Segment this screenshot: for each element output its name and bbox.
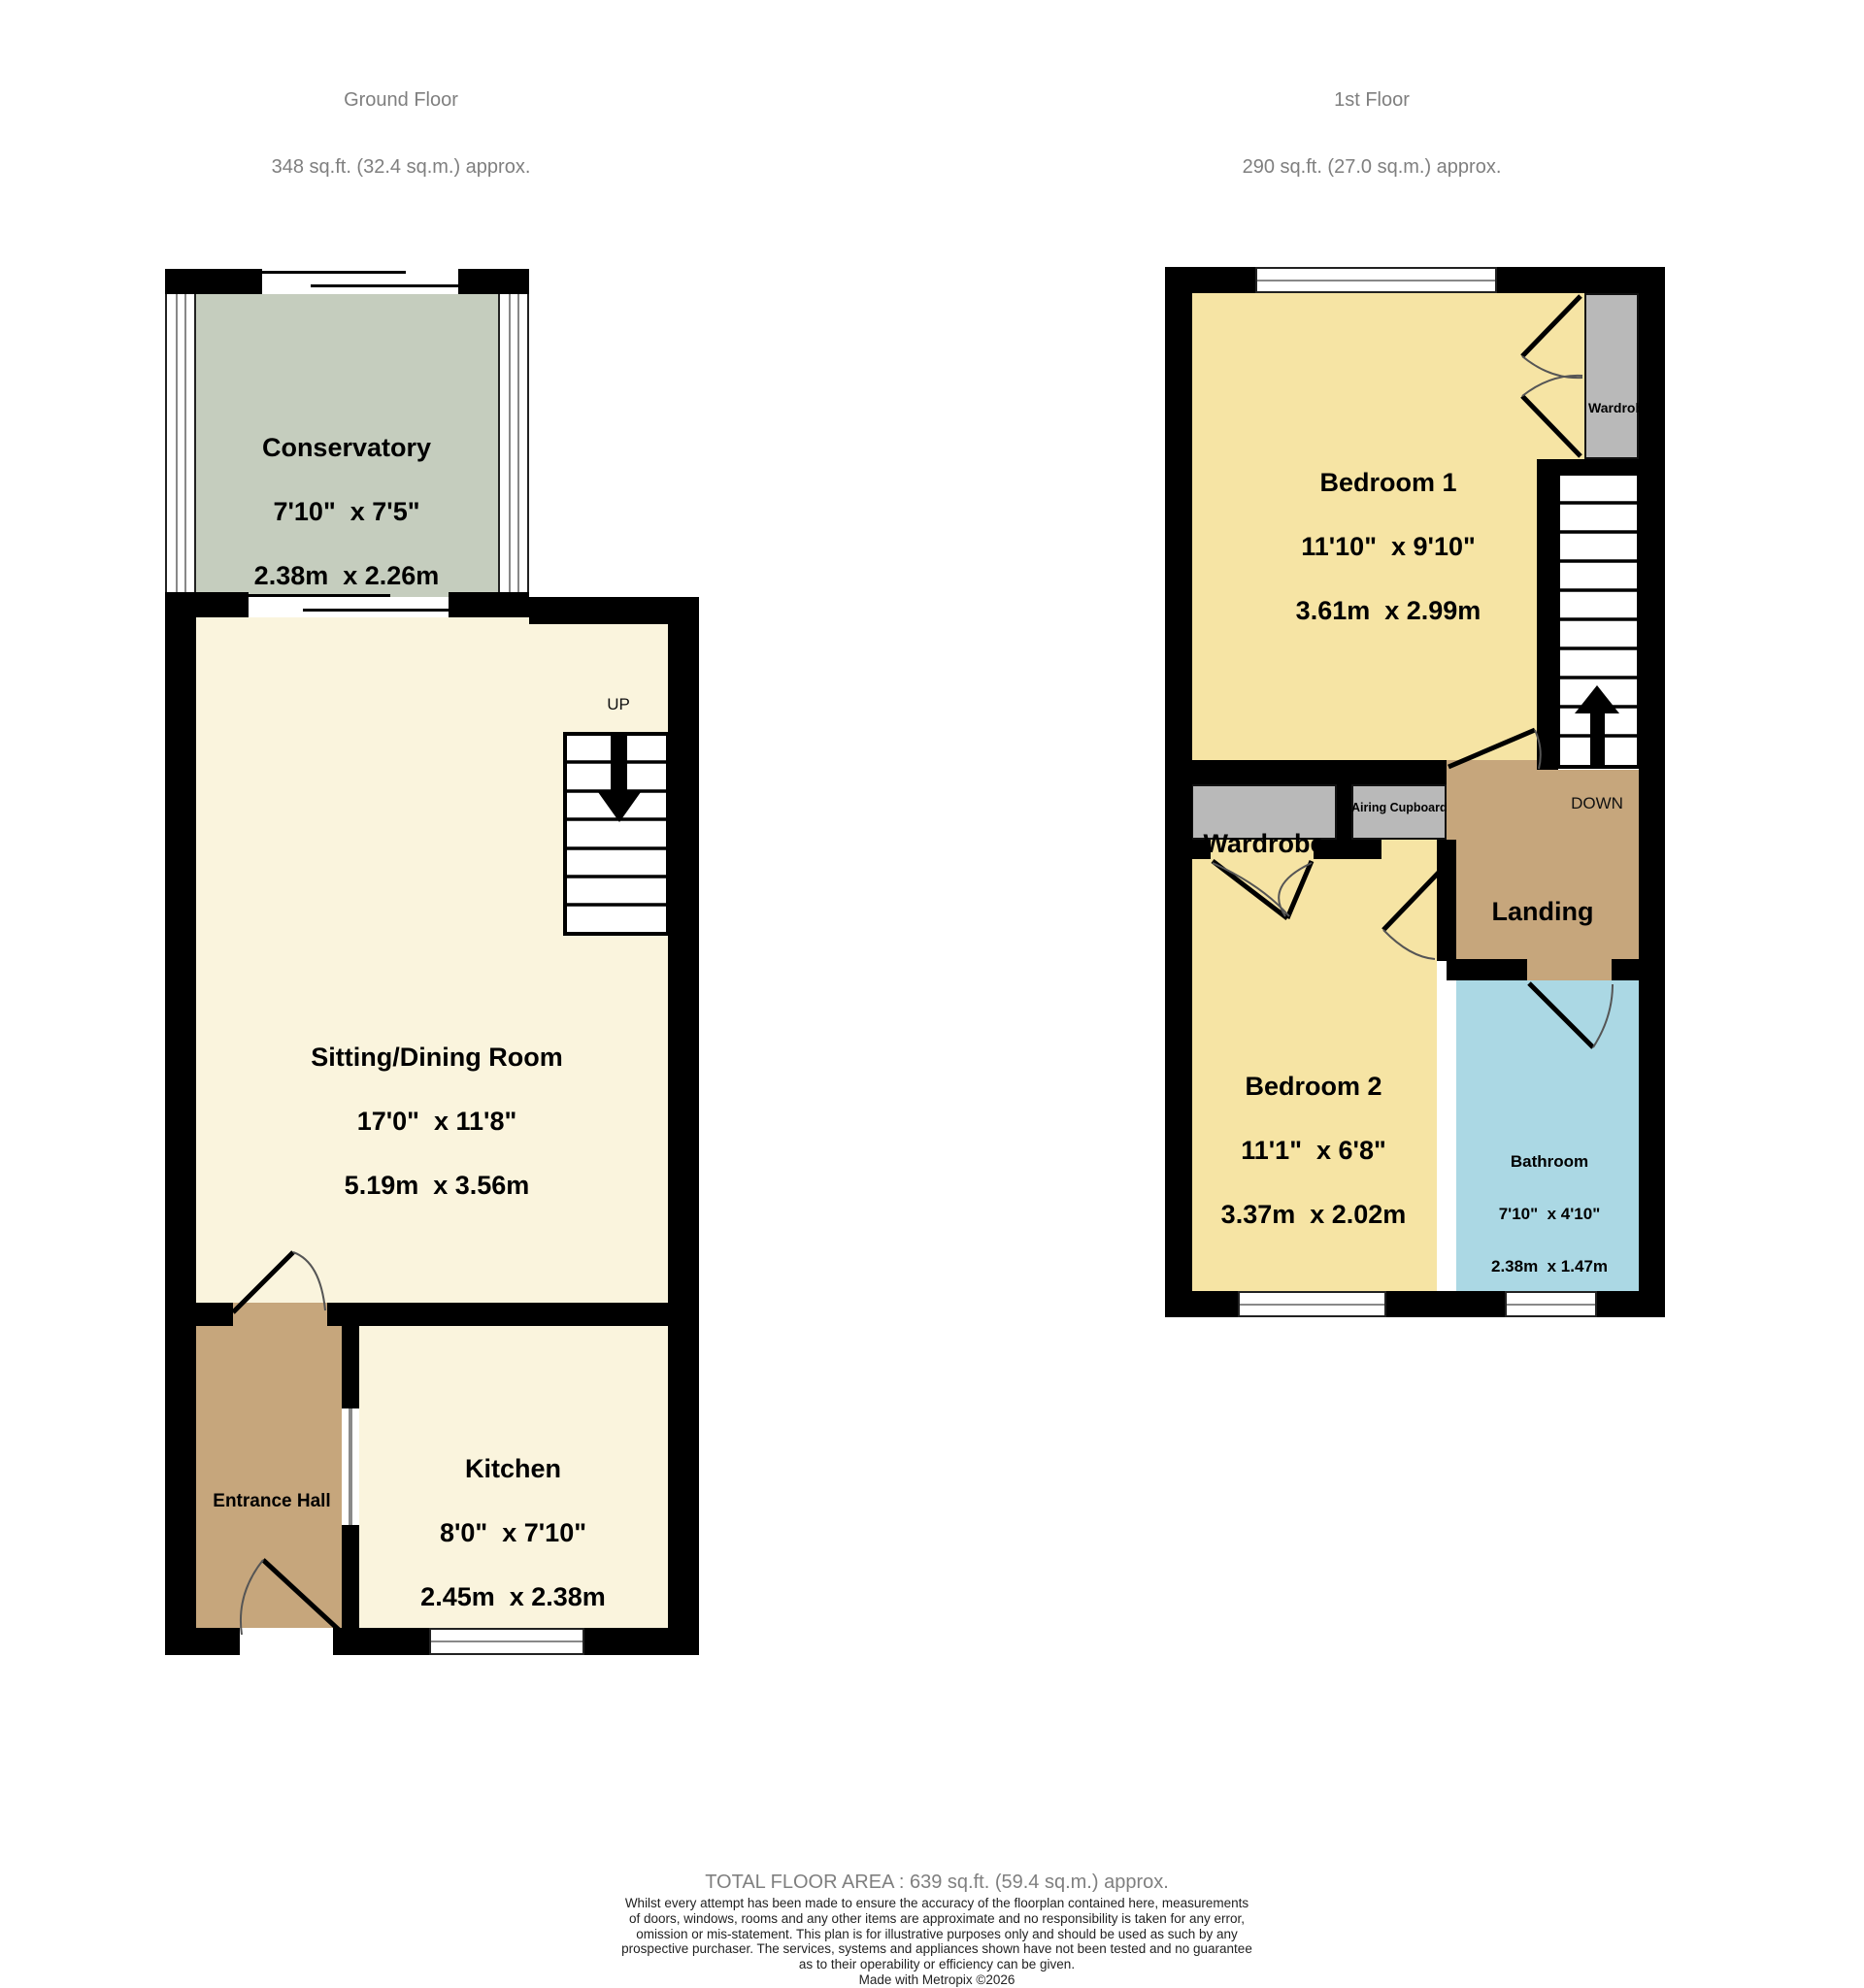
credit-line: Made with Metropix ©2026	[597, 1972, 1277, 1988]
room-name: Landing	[1465, 897, 1620, 926]
room-name: Wardrobe	[1191, 829, 1337, 858]
up-arrow-shaft	[611, 735, 627, 795]
room-dim-metric: 3.61m x 2.99m	[1243, 596, 1534, 625]
entrance-door	[241, 1560, 339, 1635]
bathroom-label: Bathroom 7'10" x 4'10" 2.38m x 1.47m	[1467, 1118, 1632, 1310]
disclaimer-line: omission or mis-statement. This plan is …	[597, 1927, 1277, 1942]
room-dim-metric: 2.38m x 1.47m	[1467, 1258, 1632, 1276]
down-arrow-shaft	[1590, 712, 1605, 767]
room-name: Bedroom 1	[1243, 468, 1534, 497]
disclaimer-line: as to their operability or efficiency ca…	[597, 1957, 1277, 1972]
bedroom1-label: Bedroom 1 11'10" x 9'10" 3.61m x 2.99m	[1243, 433, 1534, 660]
door-swing	[1535, 730, 1541, 769]
floorplan-page: Ground Floor 348 sq.ft. (32.4 sq.m.) app…	[0, 0, 1864, 1988]
total-floor-area: TOTAL FLOOR AREA : 639 sq.ft. (59.4 sq.m…	[641, 1872, 1233, 1894]
room-dim-metric: 5.19m x 3.56m	[291, 1171, 582, 1200]
room-dim-imperial: 11'1" x 6'8"	[1187, 1136, 1440, 1165]
door-leaf	[1448, 730, 1535, 767]
doors-and-stairs-overlay	[0, 0, 1864, 1988]
door-swing	[241, 1560, 263, 1635]
room-dim-metric: 3.37m x 2.02m	[1187, 1200, 1440, 1229]
room-name: Wardrob	[1588, 400, 1639, 415]
kitchen-label: Kitchen 8'0" x 7'10" 2.45m x 2.38m	[384, 1419, 642, 1646]
room-name: Conservatory	[225, 433, 468, 462]
conservatory-label: Conservatory 7'10" x 7'5" 2.38m x 2.26m	[225, 398, 468, 625]
door-swing	[1522, 356, 1582, 378]
airing-cupboard-label: Airing Cupboard	[1351, 801, 1447, 814]
wardrobe-bedroom1-label: Wardrob	[1588, 365, 1639, 450]
disclaimer-line: of doors, windows, rooms and any other i…	[597, 1911, 1277, 1927]
room-dim-imperial: 8'0" x 7'10"	[384, 1518, 642, 1547]
disclaimer-line: prospective purchaser. The services, sys…	[597, 1941, 1277, 1957]
sitting-dining-label: Sitting/Dining Room 17'0" x 11'8" 5.19m …	[291, 1008, 582, 1235]
room-name: Kitchen	[384, 1454, 642, 1483]
disclaimer-line: Whilst every attempt has been made to en…	[597, 1896, 1277, 1911]
room-dim-imperial: 7'10" x 7'5"	[225, 497, 468, 526]
landing-label: Landing	[1465, 862, 1620, 961]
door-leaf	[233, 1252, 293, 1312]
door-bedroom2	[1383, 857, 1453, 959]
door-leaf	[1522, 296, 1581, 356]
room-name: Entrance Hall	[204, 1491, 340, 1511]
room-name: Bedroom 2	[1187, 1072, 1440, 1101]
up-stairs-label: UP	[592, 695, 645, 714]
room-dim-imperial: 17'0" x 11'8"	[291, 1107, 582, 1136]
door-bedroom1	[1448, 730, 1541, 769]
entrance-hall-label: Entrance Hall	[204, 1456, 340, 1546]
room-dim-metric: 2.38m x 2.26m	[225, 561, 468, 590]
room-dim-imperial: 7'10" x 4'10"	[1467, 1206, 1632, 1223]
door-swing	[293, 1252, 325, 1310]
down-stairs-label: DOWN	[1553, 794, 1641, 813]
room-dim-metric: 2.45m x 2.38m	[384, 1582, 642, 1611]
door-leaf	[263, 1560, 339, 1630]
room-dim-imperial: 11'10" x 9'10"	[1243, 532, 1534, 561]
door-swing	[1593, 984, 1613, 1047]
door-leaf	[1529, 983, 1593, 1047]
staircase-first	[1558, 474, 1639, 767]
bedroom2-label: Bedroom 2 11'1" x 6'8" 3.37m x 2.02m	[1187, 1037, 1440, 1264]
room-name: Sitting/Dining Room	[291, 1043, 582, 1072]
staircase-ground	[565, 734, 668, 934]
wardrobe-bedroom2-label: Wardrobe	[1191, 794, 1337, 893]
door-sitting-to-hall	[233, 1252, 325, 1312]
room-name: Bathroom	[1467, 1153, 1632, 1171]
disclaimer: Whilst every attempt has been made to en…	[597, 1896, 1277, 1988]
door-swing	[1383, 930, 1435, 959]
door-bathroom	[1529, 983, 1613, 1047]
door-leaf	[1383, 857, 1453, 930]
